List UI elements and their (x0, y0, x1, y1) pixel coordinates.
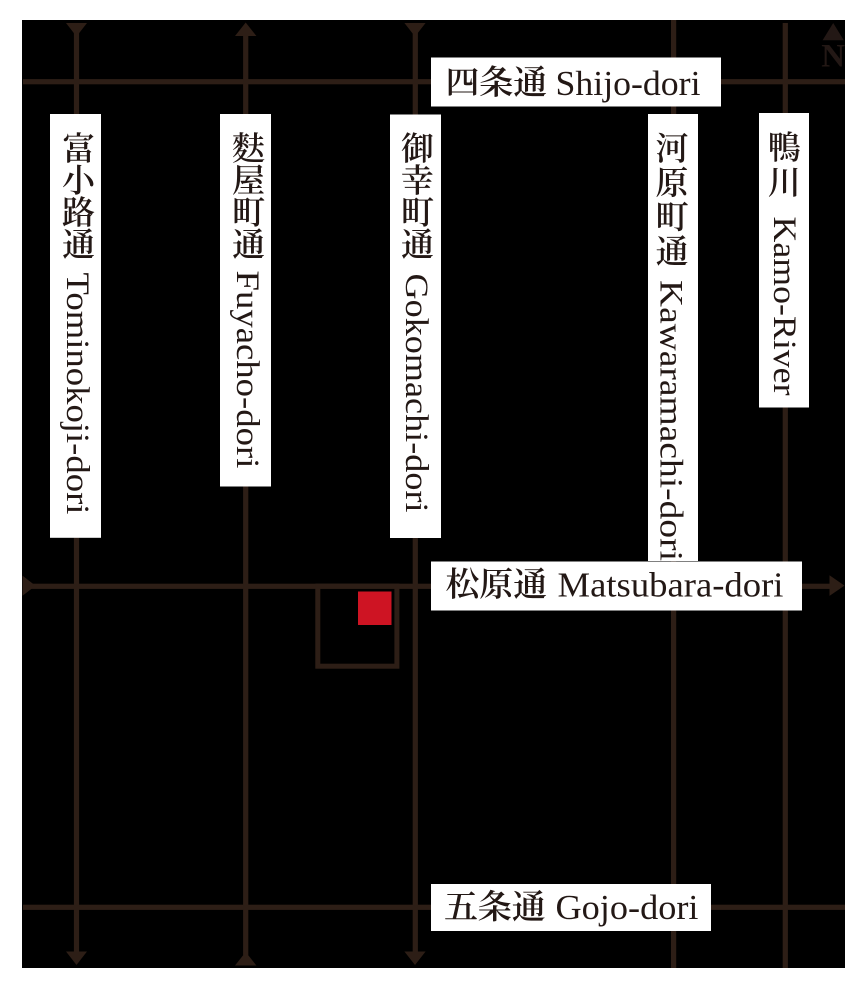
svg-text:Kawaramachi-dori: Kawaramachi-dori (653, 280, 689, 561)
svg-text:Tominokoji-dori: Tominokoji-dori (59, 273, 95, 515)
svg-text:Gokomachi-dori: Gokomachi-dori (398, 274, 434, 513)
svg-text:Fuyacho-dori: Fuyacho-dori (229, 271, 265, 469)
svg-text:Gojo-dori: Gojo-dori (556, 889, 699, 927)
svg-text:Matsubara-dori: Matsubara-dori (558, 567, 784, 605)
svg-text:Shijo-dori: Shijo-dori (556, 65, 701, 103)
svg-text:Kamo-River: Kamo-River (766, 217, 802, 396)
svg-text:N: N (821, 39, 845, 75)
